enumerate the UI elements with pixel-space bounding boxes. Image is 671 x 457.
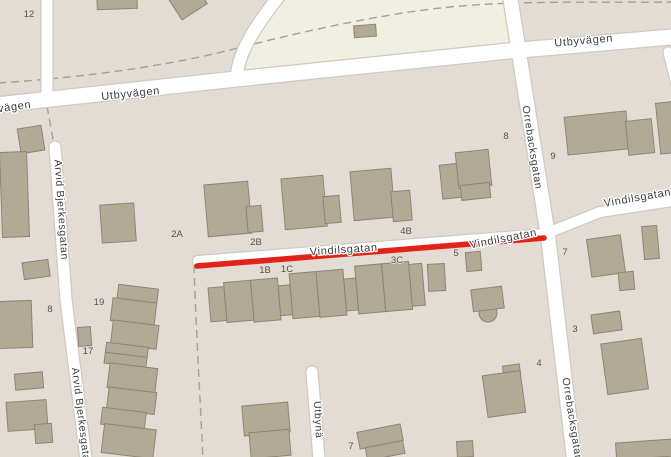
building — [100, 203, 137, 243]
building — [224, 280, 254, 322]
house-number-label: 1B — [259, 265, 271, 276]
building — [355, 264, 386, 314]
map-canvas[interactable]: vägenUtbyvägenUtbyvägenVindilsgatanVindi… — [0, 0, 671, 457]
building — [391, 190, 413, 222]
house-number-label: 4B — [400, 226, 412, 237]
building — [17, 125, 45, 153]
building — [618, 271, 635, 290]
building — [204, 181, 252, 237]
house-number-label: 3C — [391, 255, 403, 266]
map-viewport[interactable]: vägenUtbyvägenUtbyvägenVindilsgatanVindi… — [0, 0, 671, 457]
building — [0, 300, 33, 348]
house-number-label: 19 — [94, 297, 105, 308]
building — [471, 286, 504, 312]
building — [457, 441, 474, 457]
house-number-label: 8 — [503, 131, 508, 142]
building — [316, 269, 347, 317]
building — [289, 272, 320, 319]
building — [642, 225, 660, 259]
house-number-label: 8 — [47, 304, 52, 315]
building — [460, 182, 490, 200]
building — [382, 261, 413, 311]
building — [101, 424, 156, 457]
building — [625, 119, 654, 156]
building — [250, 278, 281, 322]
building — [323, 195, 341, 223]
building — [14, 372, 43, 390]
building — [587, 235, 626, 277]
building — [281, 175, 327, 229]
house-number-label: 2A — [171, 229, 183, 240]
building — [591, 311, 622, 334]
house-number-label: 2B — [250, 237, 262, 248]
street-name-label: Utbynä — [311, 401, 325, 439]
building — [22, 259, 50, 279]
house-number-label: 7 — [562, 247, 567, 258]
building — [34, 423, 52, 443]
building — [601, 338, 649, 394]
house-number-label: 12 — [24, 9, 35, 20]
house-number-label: 9 — [550, 151, 555, 162]
building — [350, 168, 395, 220]
building — [427, 264, 445, 292]
house-number-label: 17 — [83, 346, 94, 357]
building — [249, 429, 291, 457]
building — [246, 205, 263, 232]
building — [354, 24, 377, 38]
building — [482, 371, 525, 418]
house-number-label: 4 — [536, 358, 541, 369]
house-number-label: 1C — [281, 264, 293, 275]
house-number-label: 7 — [348, 441, 353, 452]
building — [97, 0, 138, 10]
building — [77, 327, 91, 347]
building — [0, 152, 29, 238]
house-number-label: 3 — [572, 324, 577, 335]
building — [465, 251, 482, 271]
house-number-label: 5 — [453, 248, 458, 259]
building — [564, 111, 630, 155]
